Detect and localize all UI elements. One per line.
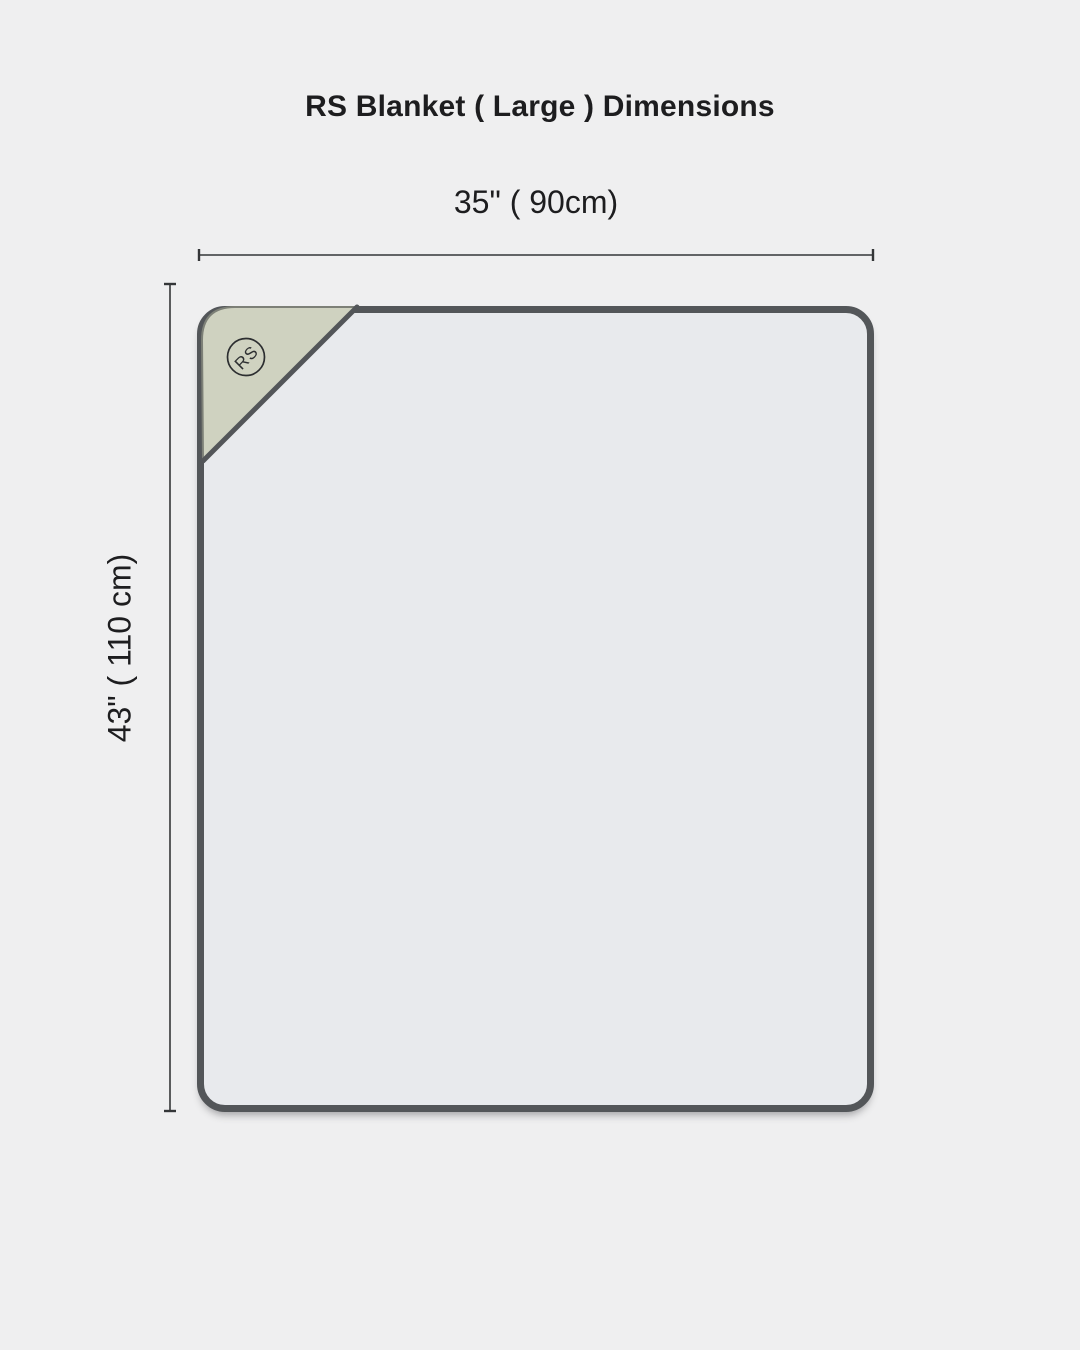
page-title: RS Blanket ( Large ) Dimensions xyxy=(0,90,1080,124)
height-dimension-line xyxy=(164,284,176,1111)
dimension-diagram: RS Blanket ( Large ) Dimensions 35" ( 90… xyxy=(0,0,1080,1350)
height-dimension-label: 43" ( 110 cm) xyxy=(102,554,139,743)
width-dimension-line xyxy=(199,249,873,261)
width-dimension-label: 35" ( 90cm) xyxy=(198,184,874,221)
blanket-outline xyxy=(197,306,874,1112)
